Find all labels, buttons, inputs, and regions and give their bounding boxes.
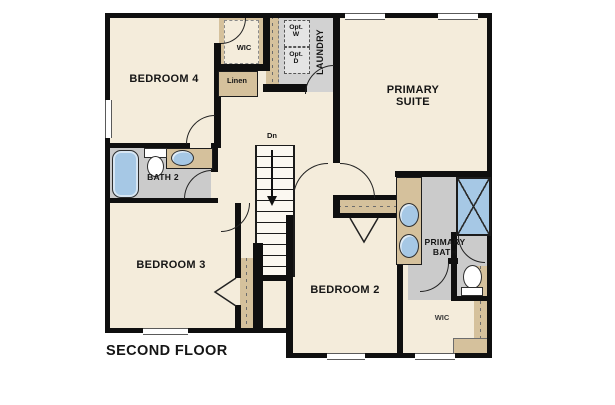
wall-laundry-right — [333, 13, 340, 163]
opt-dryer-line1: Opt. — [289, 51, 303, 58]
window-bedroom3-bottom — [143, 328, 188, 335]
linen-label: Linen — [218, 77, 256, 85]
window-wic-lower-bottom — [415, 353, 455, 360]
floor-title: SECOND FLOOR — [106, 343, 326, 359]
wall-exterior-bottom-left — [105, 328, 293, 333]
bath2-label: BATH 2 — [145, 173, 181, 183]
primary-sink-2 — [399, 234, 419, 258]
wall-wic-upper-right — [263, 13, 270, 71]
primary-bath-label: PRIMARY BATH — [417, 238, 473, 257]
window-bedroom4-left — [105, 100, 112, 138]
stair-arrow-line — [271, 150, 273, 197]
wall-laundry-bottom — [263, 84, 307, 92]
bedroom4-label: BEDROOM 4 — [114, 73, 214, 85]
wic-lower-label: WIC — [424, 314, 460, 322]
window-suite-top-1 — [345, 13, 385, 20]
wc-toilet-bowl — [463, 265, 482, 289]
primary-suite-label: PRIMARY SUITE — [373, 84, 453, 109]
wall-bedroom2-left — [286, 215, 293, 358]
opt-washer-label: Opt. W — [284, 24, 308, 39]
opt-dryer-label: Opt. D — [284, 51, 308, 66]
stairs-dn-label: Dn — [256, 132, 288, 140]
wall-wc-bottom — [451, 296, 487, 301]
shower — [456, 177, 491, 236]
bedroom3-door-symbol — [212, 276, 238, 308]
opt-dryer-line2: D — [294, 58, 299, 65]
wall-exterior-left — [105, 13, 110, 333]
stair-arrow-head — [267, 196, 277, 206]
bedroom3-label: BEDROOM 3 — [121, 259, 221, 271]
wall-bath-wic-divider-b — [448, 258, 458, 264]
bath2-sink — [171, 150, 194, 166]
bedroom2-closet-rod — [338, 200, 397, 213]
bedroom2-closet-door-symbol — [348, 216, 380, 246]
wall-exterior-top — [105, 13, 492, 18]
wall-wic-upper-bottom — [214, 64, 270, 71]
bathtub — [112, 150, 139, 198]
primary-sink-1 — [399, 203, 419, 227]
window-suite-top-2 — [438, 13, 478, 20]
wall-understair-left — [253, 243, 263, 333]
laundry-label: LAUNDRY — [315, 22, 325, 82]
window-bedroom2-bottom — [327, 353, 365, 360]
wic-upper-label: WIC — [226, 44, 262, 52]
opt-washer-line2: W — [293, 31, 299, 38]
floor-plan: BEDROOM 4 WIC Linen Opt. W Opt. D LAUNDR… — [0, 0, 615, 405]
wall-bedroom3-right-lower — [235, 305, 241, 333]
opt-washer-line1: Opt. — [289, 24, 303, 31]
bedroom2-label: BEDROOM 2 — [295, 284, 395, 296]
wc-toilet-base — [461, 287, 483, 296]
bedroom3-closet-strip — [240, 258, 253, 333]
